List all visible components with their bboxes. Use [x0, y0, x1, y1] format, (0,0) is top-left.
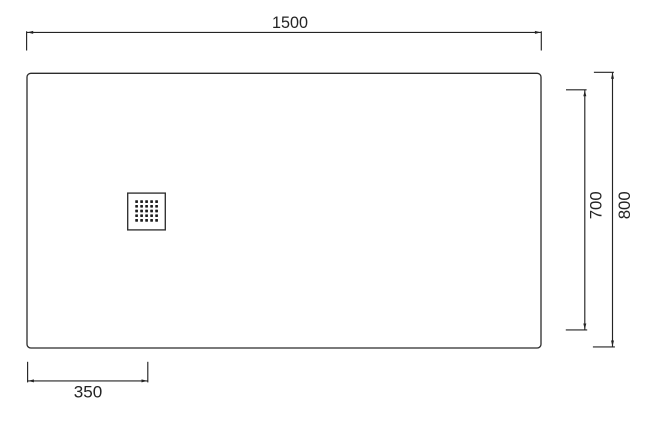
svg-text:700: 700 [587, 191, 606, 219]
svg-text:350: 350 [74, 383, 103, 402]
svg-text:800: 800 [615, 191, 634, 219]
svg-text:1500: 1500 [272, 13, 308, 32]
